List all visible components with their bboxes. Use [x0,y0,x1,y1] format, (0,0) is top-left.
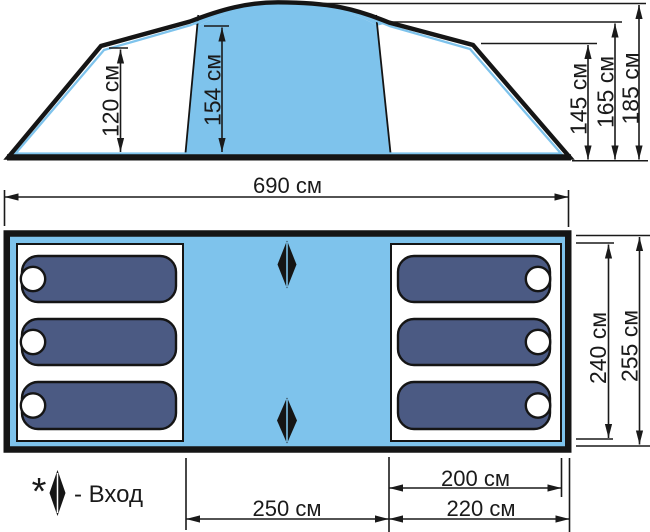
svg-text:250 см: 250 см [253,496,322,521]
svg-text:165 см: 165 см [593,56,619,128]
svg-text:240 см: 240 см [585,312,611,384]
svg-text:*: * [32,471,47,513]
svg-text:185 см: 185 см [618,52,644,124]
svg-text:120 см: 120 см [98,65,124,137]
svg-text:200 см: 200 см [441,466,510,491]
svg-text:145 см: 145 см [566,63,592,135]
svg-text:154 см: 154 см [200,54,226,126]
svg-text:690 см: 690 см [253,173,322,198]
svg-text:- Вход: - Вход [74,481,143,508]
svg-text:220 см: 220 см [447,496,516,521]
svg-text:255 см: 255 см [617,310,643,382]
